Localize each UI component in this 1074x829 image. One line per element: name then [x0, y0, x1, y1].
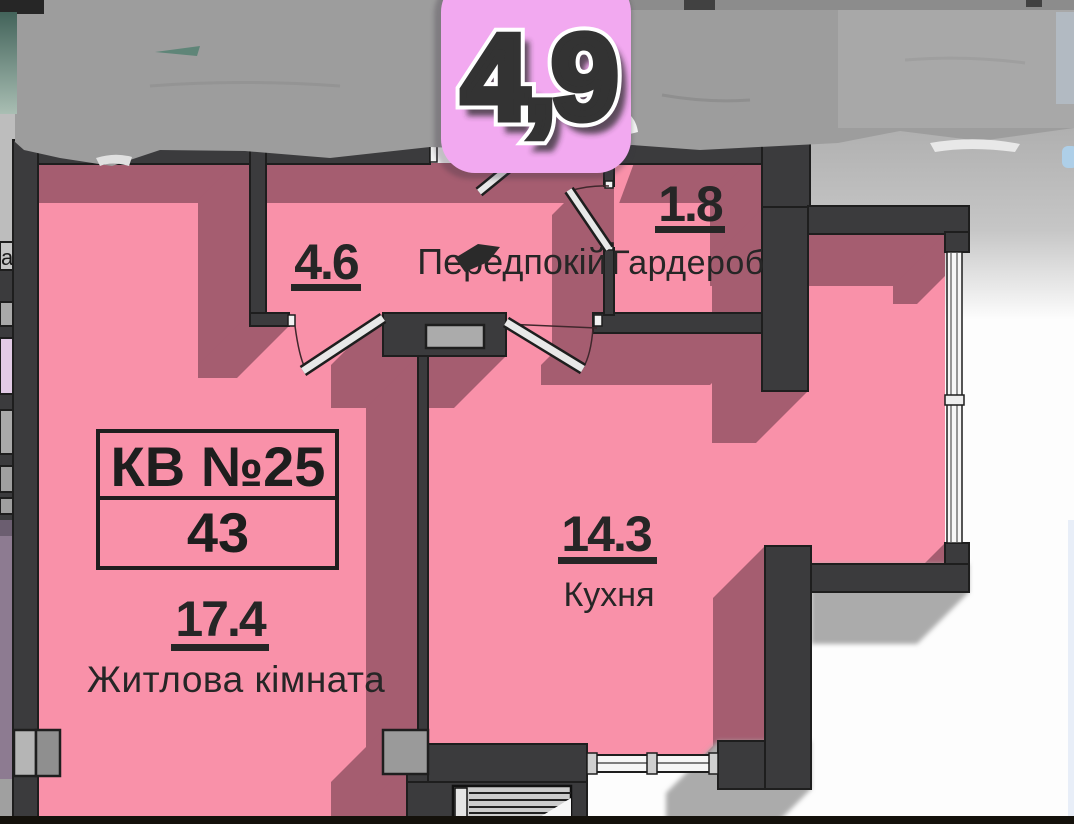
svg-text:КВ №25: КВ №25: [111, 435, 326, 498]
svg-text:1.8: 1.8: [658, 176, 723, 232]
svg-text:17.4: 17.4: [175, 591, 267, 647]
svg-text:Кухня: Кухня: [564, 576, 655, 614]
svg-text:Гардероб: Гардероб: [611, 244, 765, 282]
svg-text:43: 43: [187, 501, 249, 564]
svg-text:4.6: 4.6: [294, 234, 358, 290]
svg-text:14.3: 14.3: [561, 506, 651, 562]
svg-text:Передпокій: Передпокій: [417, 241, 607, 282]
svg-text:4,9: 4,9: [461, 9, 615, 145]
svg-text:Житлова кімната: Житлова кімната: [87, 659, 385, 700]
